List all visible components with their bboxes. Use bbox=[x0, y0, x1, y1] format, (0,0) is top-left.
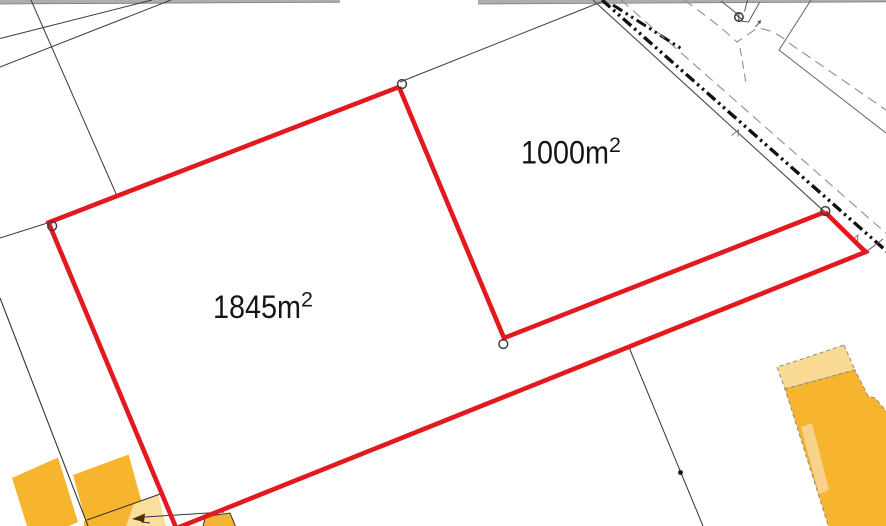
svg-text:1000m2: 1000m2 bbox=[521, 133, 621, 171]
svg-text:1845m2: 1845m2 bbox=[213, 288, 313, 326]
